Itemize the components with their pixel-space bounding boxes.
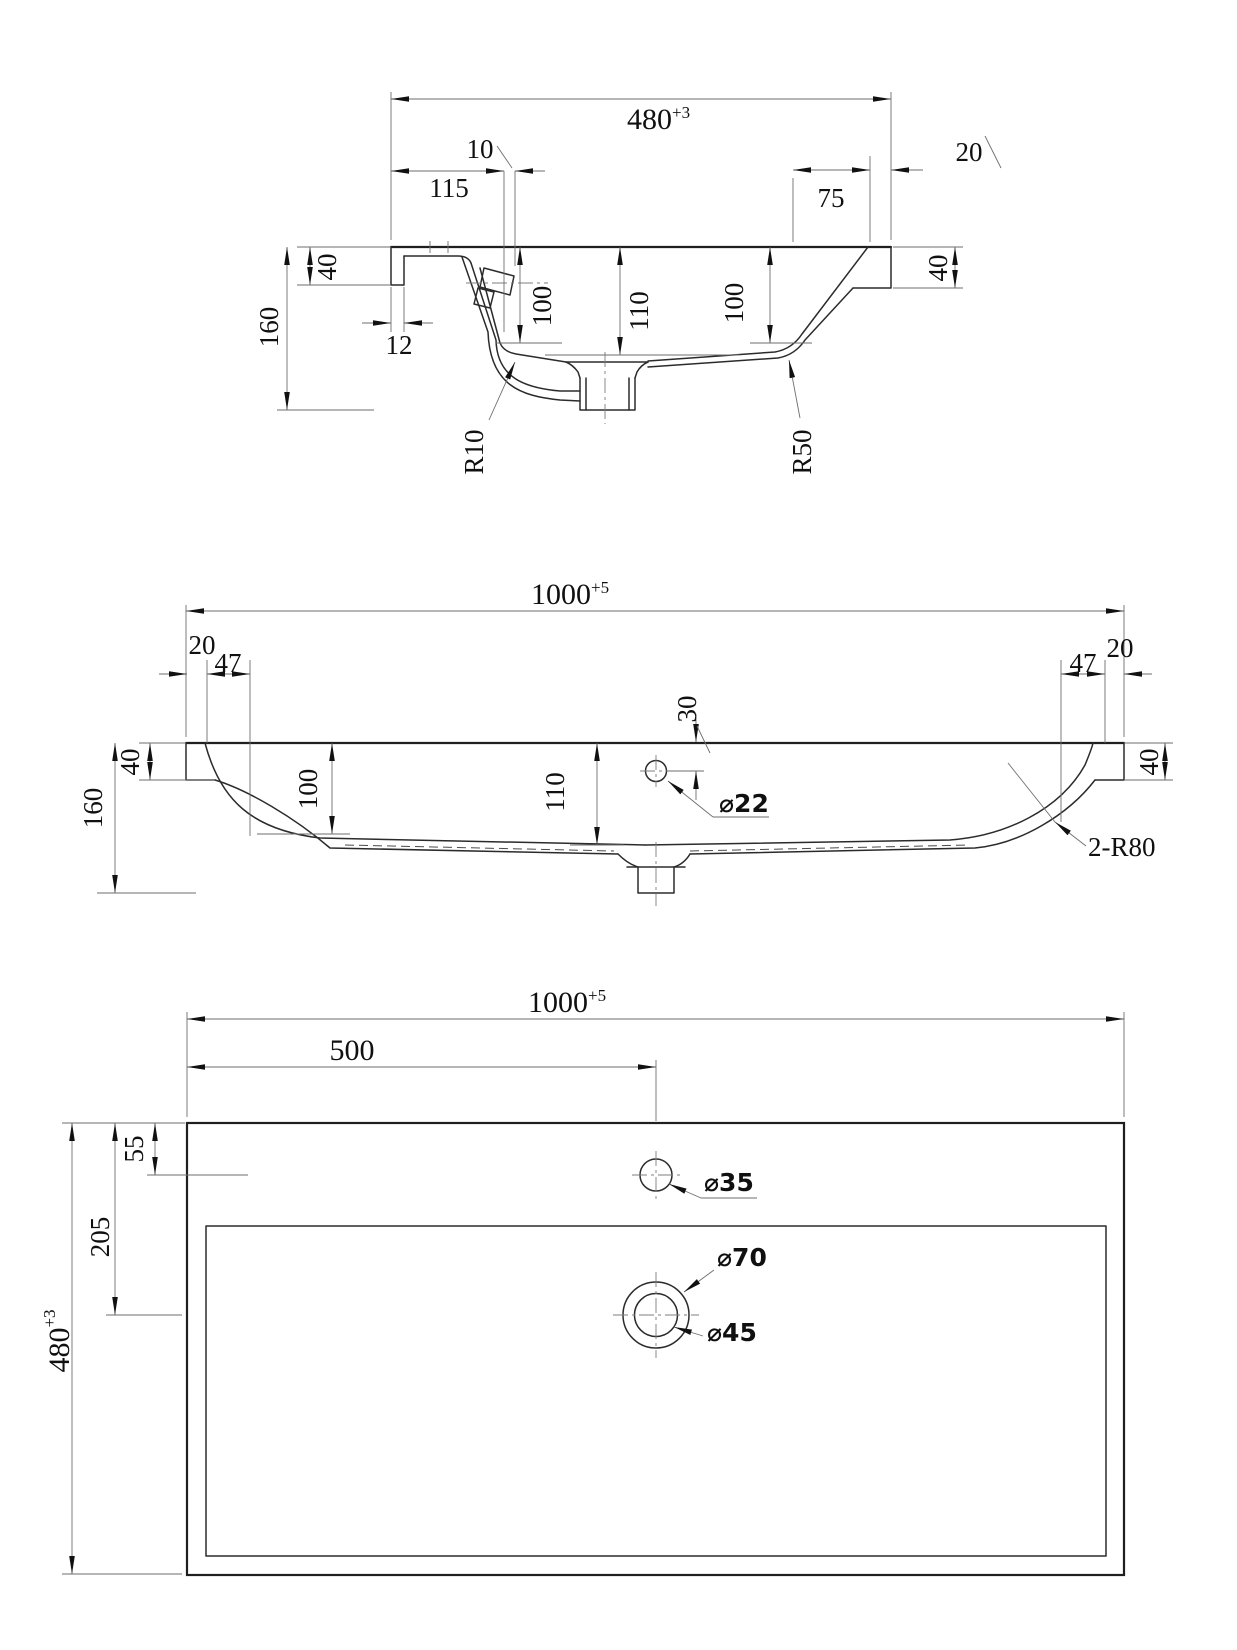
front-right-step [1095,743,1124,780]
side-r10-label: R10 [459,429,489,474]
front-dim-110-label: 110 [540,772,570,812]
front-drain-boss [618,854,690,893]
side-dim-40l-label: 40 [312,254,342,281]
front-r80-leader [1055,822,1086,846]
technical-drawing-page: 480+3 115 10 75 20 40 160 12 100 110 100 [0,0,1237,1650]
plan-dia70-label: ⌀70 [717,1243,767,1272]
side-drain-boss [580,378,635,410]
plan-dia45-label: ⌀45 [707,1318,757,1347]
front-dim-40l-label: 40 [115,749,145,776]
side-dim-160-label: 160 [254,307,284,348]
plan-dia35-label: ⌀35 [704,1168,754,1197]
side-deck-top [404,256,471,263]
plan-dia35-leader [669,1184,701,1198]
front-dim-47r-label: 47 [1070,648,1097,678]
side-left-lip [391,247,404,285]
plan-dim-55-label: 55 [119,1136,149,1163]
side-faucet-hole-section [480,268,514,295]
side-dim-40r-label: 40 [923,255,953,282]
side-dim-100l-label: 100 [527,286,557,327]
front-dia22-leader [668,781,713,817]
front-section-view: 1000+5 20 47 47 20 40 160 100 110 30 ⌀22 [78,578,1173,906]
front-dim-40r-label: 40 [1134,749,1164,776]
side-dim-100r-label: 100 [719,283,749,324]
front-dim-30-label: 30 [672,696,702,723]
side-dim-10-label: 10 [467,134,494,164]
front-dim-20r-label: 20 [1107,633,1134,663]
plan-drain-centerlines [613,1272,699,1358]
front-r80-label: 2-R80 [1088,832,1156,862]
front-dim-100-label: 100 [293,769,323,810]
plan-dim-1000-label: 1000+5 [528,986,606,1019]
side-r50-label: R50 [787,429,817,474]
side-dim-20-label: 20 [956,137,983,167]
side-right-edge [853,247,891,288]
plan-dim-500-label: 500 [330,1034,375,1067]
front-dim-1000-label: 1000+5 [531,578,609,611]
side-drain-shoulder-r [635,362,648,378]
side-section-view: 480+3 115 10 75 20 40 160 12 100 110 100 [254,92,1001,475]
side-channel-mid [471,263,580,391]
front-dim-160-label: 160 [78,788,108,829]
side-dim-12-label: 12 [386,330,413,360]
plan-dim-480-label: 480+3 [40,1309,76,1372]
side-channel-outer [462,257,580,401]
plan-view: 1000+5 500 55 205 480+3 ⌀35 ⌀70 ⌀45 [40,986,1124,1575]
sink-technical-drawing: 480+3 115 10 75 20 40 160 12 100 110 100 [0,0,1237,1650]
side-basin-floor-right [648,247,868,361]
side-dim-115-label: 115 [429,173,469,203]
front-dim-20l-label: 20 [189,630,216,660]
side-drain-shoulder-l [566,362,580,378]
side-r10-leader [489,362,515,420]
side-dim-75-label: 75 [818,183,845,213]
front-dia22-label: ⌀22 [719,789,769,818]
front-inner-right [645,743,1093,845]
front-inner-left [205,743,645,845]
side-drain-throat [586,378,629,410]
plan-dia70-leader [684,1270,714,1292]
side-r50-leader [789,360,800,418]
side-dim-480-label: 480+3 [627,103,690,136]
side-dim-110-label: 110 [624,291,654,331]
plan-dia45-leader [674,1327,703,1336]
plan-faucet-centerlines [632,1151,680,1199]
plan-dim-205-label: 205 [85,1217,115,1258]
front-dim-47l-label: 47 [215,648,242,678]
